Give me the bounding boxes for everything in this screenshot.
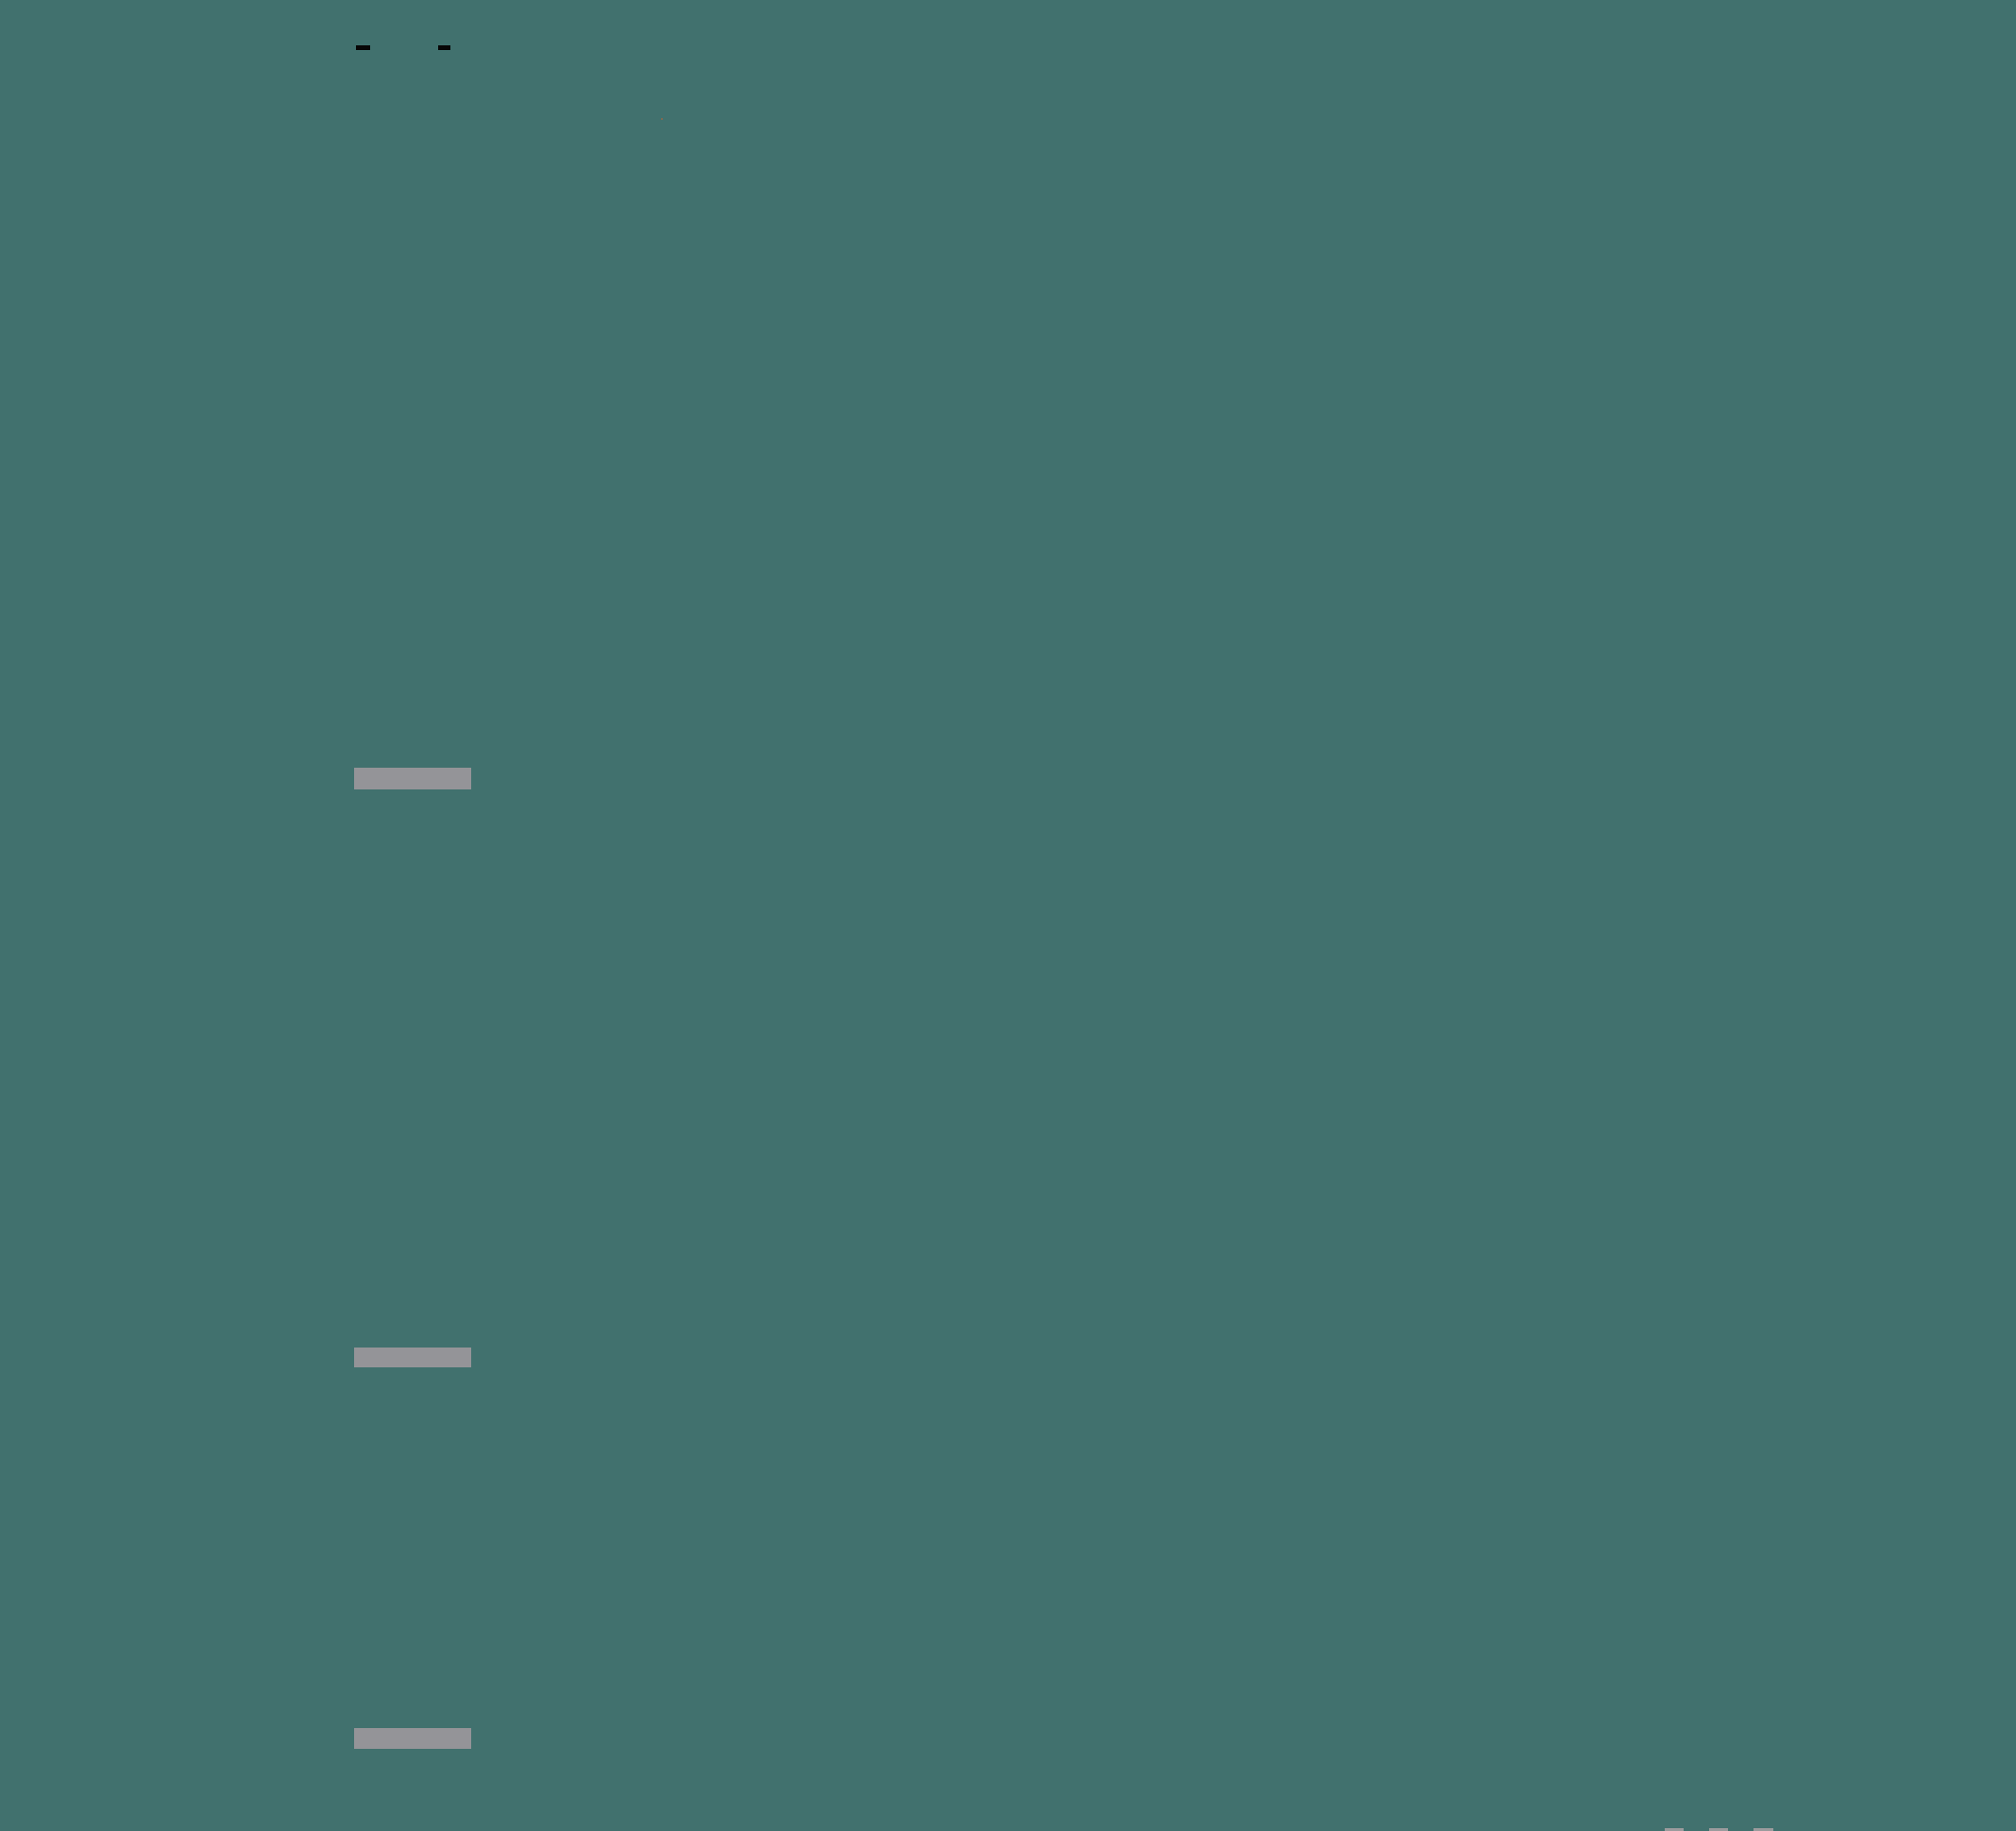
- placeholder-bar-2: [354, 1348, 471, 1367]
- top-dash-1: [356, 45, 370, 50]
- top-dash-2: [438, 45, 450, 50]
- placeholder-bar-1: [354, 768, 471, 789]
- placeholder-bar-3: [354, 1728, 471, 1749]
- blank-teal-canvas: [0, 0, 2016, 1831]
- pixel-artifact-dot: [661, 118, 663, 120]
